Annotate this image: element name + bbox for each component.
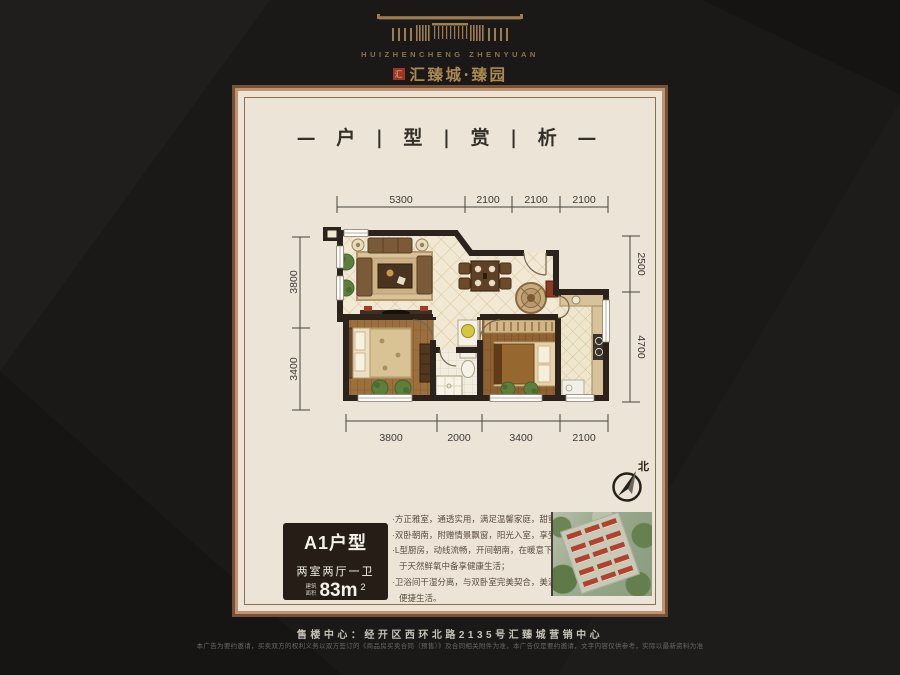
feature-line: 于天然鲜氧中备享健康生活； <box>392 559 550 575</box>
bedroom-2-furniture <box>484 320 556 386</box>
building-roof <box>579 566 595 577</box>
disclaimer-line: 本广告为要约邀请，买卖双方的权利义务以双方签订的《商品房买卖合同（预售）》及合同… <box>0 640 900 650</box>
feature-list: ·方正雅室，通透实用，满足温馨家庭，甜蜜二人世界； ·双卧朝南，附赠情景飘窗，阳… <box>392 512 550 606</box>
dim-label: 3800 <box>379 432 403 444</box>
dim-label: 3800 <box>288 270 300 294</box>
building-roof <box>592 548 608 559</box>
dim-label: 2500 <box>635 252 647 276</box>
dim-label: 2100 <box>476 194 500 206</box>
building-roof <box>601 518 617 529</box>
gate-icon <box>370 13 530 47</box>
area-value: 83m <box>319 581 357 600</box>
dim-label: 2000 <box>447 432 471 444</box>
page-title: — 户 | 型 | 赏 | 析 — <box>0 123 900 150</box>
brand-seal-icon: 汇 <box>393 68 405 80</box>
area-superscript: 2 <box>361 583 366 592</box>
unit-info-box: A1户型 两室两厅一卫 建筑 面积 83m 2 <box>283 523 388 600</box>
building-roof <box>605 530 621 541</box>
building-roof <box>584 524 600 535</box>
building-roof <box>596 560 612 571</box>
feature-line: ·方正雅室，通透实用，满足温馨家庭，甜蜜二人世界； <box>392 512 550 528</box>
building-roof <box>566 530 582 541</box>
dim-label: 3400 <box>288 357 300 381</box>
community-render-image <box>551 512 652 596</box>
dim-label: 4700 <box>635 335 647 359</box>
compass-icon: 北 <box>614 459 650 501</box>
dim-label: 2100 <box>572 194 596 206</box>
dim-label: 3400 <box>509 432 533 444</box>
dim-label: 2100 <box>572 432 596 444</box>
unit-name: A1户型 <box>304 529 367 555</box>
feature-line: ·卫浴间干湿分离，与双卧室完美契合，美满中更享 <box>392 575 550 591</box>
building-roof <box>574 554 590 565</box>
dim-label: 5300 <box>389 194 413 206</box>
building-roof <box>583 577 599 588</box>
building-roof <box>600 571 616 582</box>
feature-line: ·双卧朝南，附赠情景飘窗，阳光入室，享受自然健康； <box>392 528 550 544</box>
brand-logo: HUIZHENCHENG ZHENYUAN 汇 汇臻城·臻园 <box>0 13 900 85</box>
sales-center-line: 售楼中心：经开区西环北路2135号汇臻城营销中心 <box>0 626 900 641</box>
unit-layout: 两室两厅一卫 <box>297 563 375 579</box>
building-roof <box>609 542 625 553</box>
feature-line: ·L型厨房，动线流畅，开间朝南，在暖意下品味美食， <box>392 543 550 559</box>
unit-area: 建筑 面积 83m 2 <box>305 581 365 600</box>
building-roof <box>618 565 634 576</box>
floor-plan: 5300 2100 2100 2100 3800 2000 3400 2100 … <box>260 182 660 507</box>
building-roof <box>570 542 586 553</box>
feature-line: 便捷生活。 <box>392 591 550 607</box>
area-label-bottom: 面积 <box>305 591 316 598</box>
brand-name-cn: 汇臻城·臻园 <box>410 63 508 85</box>
render-buildings <box>560 512 640 594</box>
building-roof <box>613 554 629 565</box>
brand-name-en: HUIZHENCHENG ZHENYUAN <box>361 50 539 59</box>
poster-page: HUIZHENCHENG ZHENYUAN 汇 汇臻城·臻园 — 户 | 型 |… <box>0 0 900 675</box>
compass-north-label: 北 <box>638 459 649 473</box>
dim-label: 2100 <box>524 194 548 206</box>
building-roof <box>588 536 604 547</box>
